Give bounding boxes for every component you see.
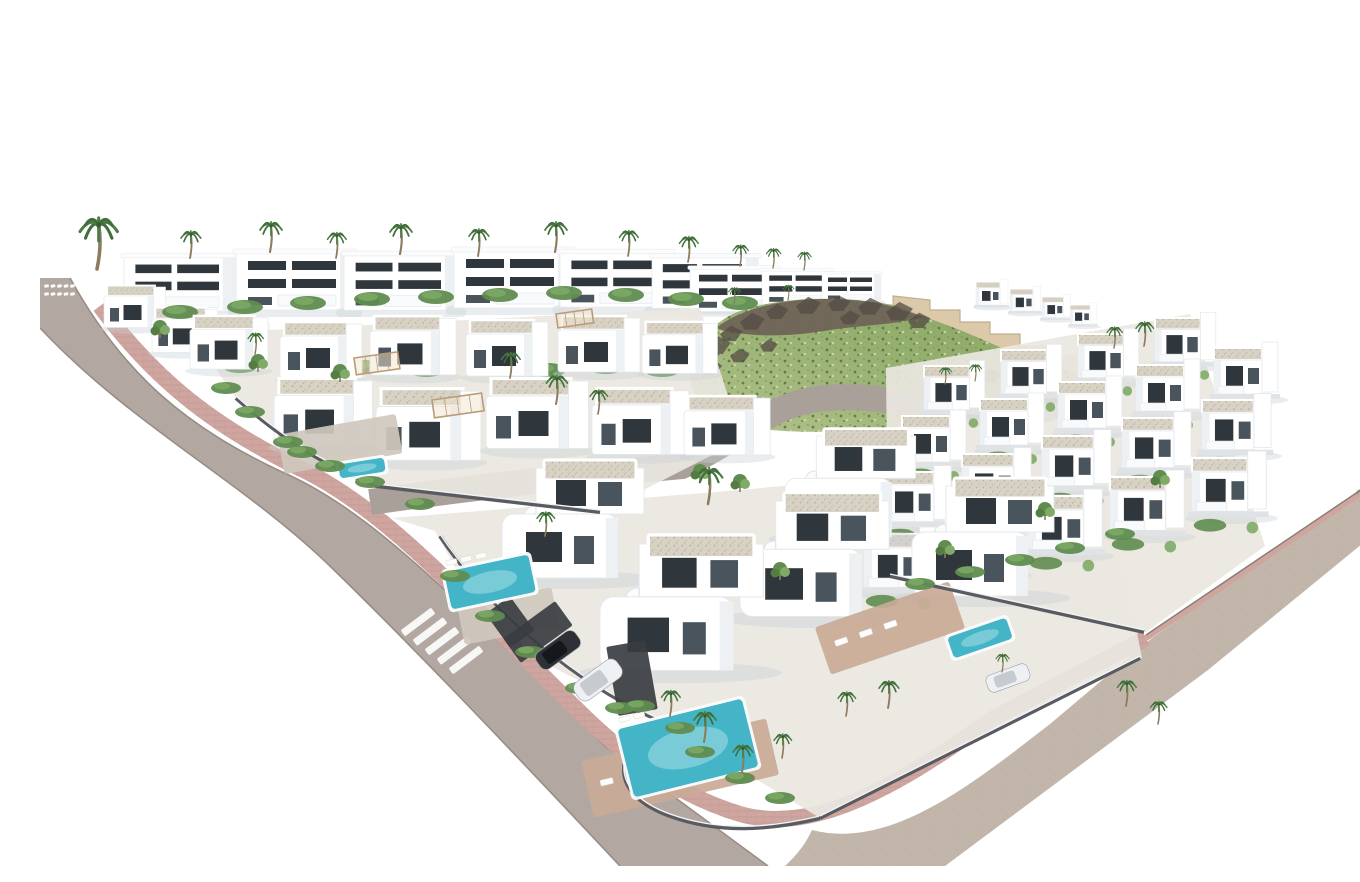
villa-cube bbox=[480, 379, 595, 459]
villa-cube bbox=[679, 396, 776, 463]
villa-right bbox=[1116, 412, 1202, 480]
villa-right bbox=[1196, 394, 1282, 462]
villa-right bbox=[973, 279, 1013, 311]
villa-right bbox=[1185, 451, 1278, 524]
villa-right bbox=[1052, 376, 1132, 439]
villa-cube bbox=[461, 320, 553, 384]
villa-right bbox=[1007, 286, 1045, 316]
aerial-architectural-render bbox=[40, 16, 1360, 866]
villa-cube bbox=[637, 322, 722, 381]
villa-cube bbox=[365, 316, 462, 383]
villa-cube bbox=[275, 322, 367, 386]
villa-cube bbox=[586, 388, 695, 464]
render-canvas bbox=[40, 16, 1360, 866]
villa-right bbox=[1130, 359, 1210, 422]
villa-back bbox=[336, 251, 466, 317]
villa-right bbox=[1067, 302, 1101, 328]
villa-right bbox=[1208, 342, 1288, 405]
